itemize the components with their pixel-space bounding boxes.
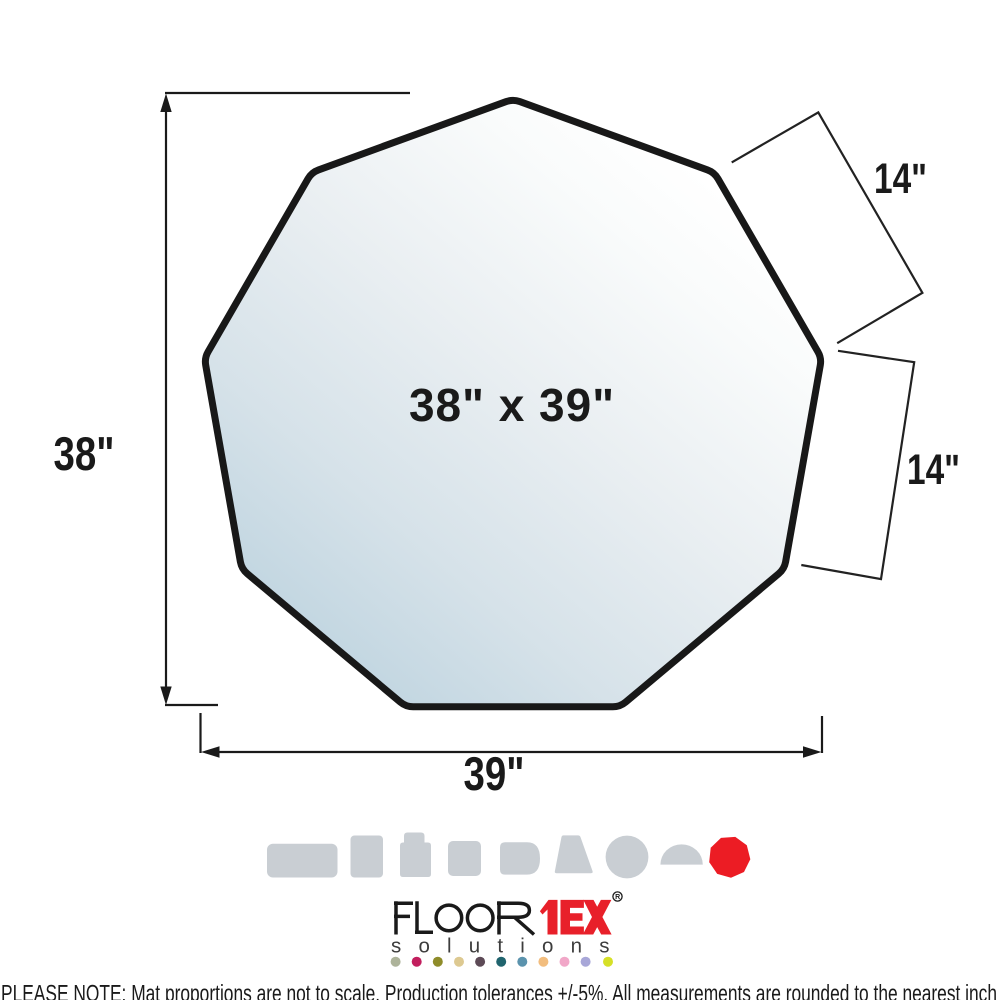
svg-text:39": 39" bbox=[464, 747, 525, 800]
svg-text:14": 14" bbox=[874, 156, 927, 203]
svg-text:solutions: solutions bbox=[391, 935, 627, 958]
svg-text:38" x 39": 38" x 39" bbox=[409, 379, 615, 431]
svg-text:38": 38" bbox=[54, 427, 115, 480]
svg-text:14": 14" bbox=[907, 447, 960, 494]
svg-text:R: R bbox=[615, 894, 620, 901]
svg-text:PLEASE NOTE: Mat proportions a: PLEASE NOTE: Mat proportions are not to … bbox=[1, 981, 997, 1000]
